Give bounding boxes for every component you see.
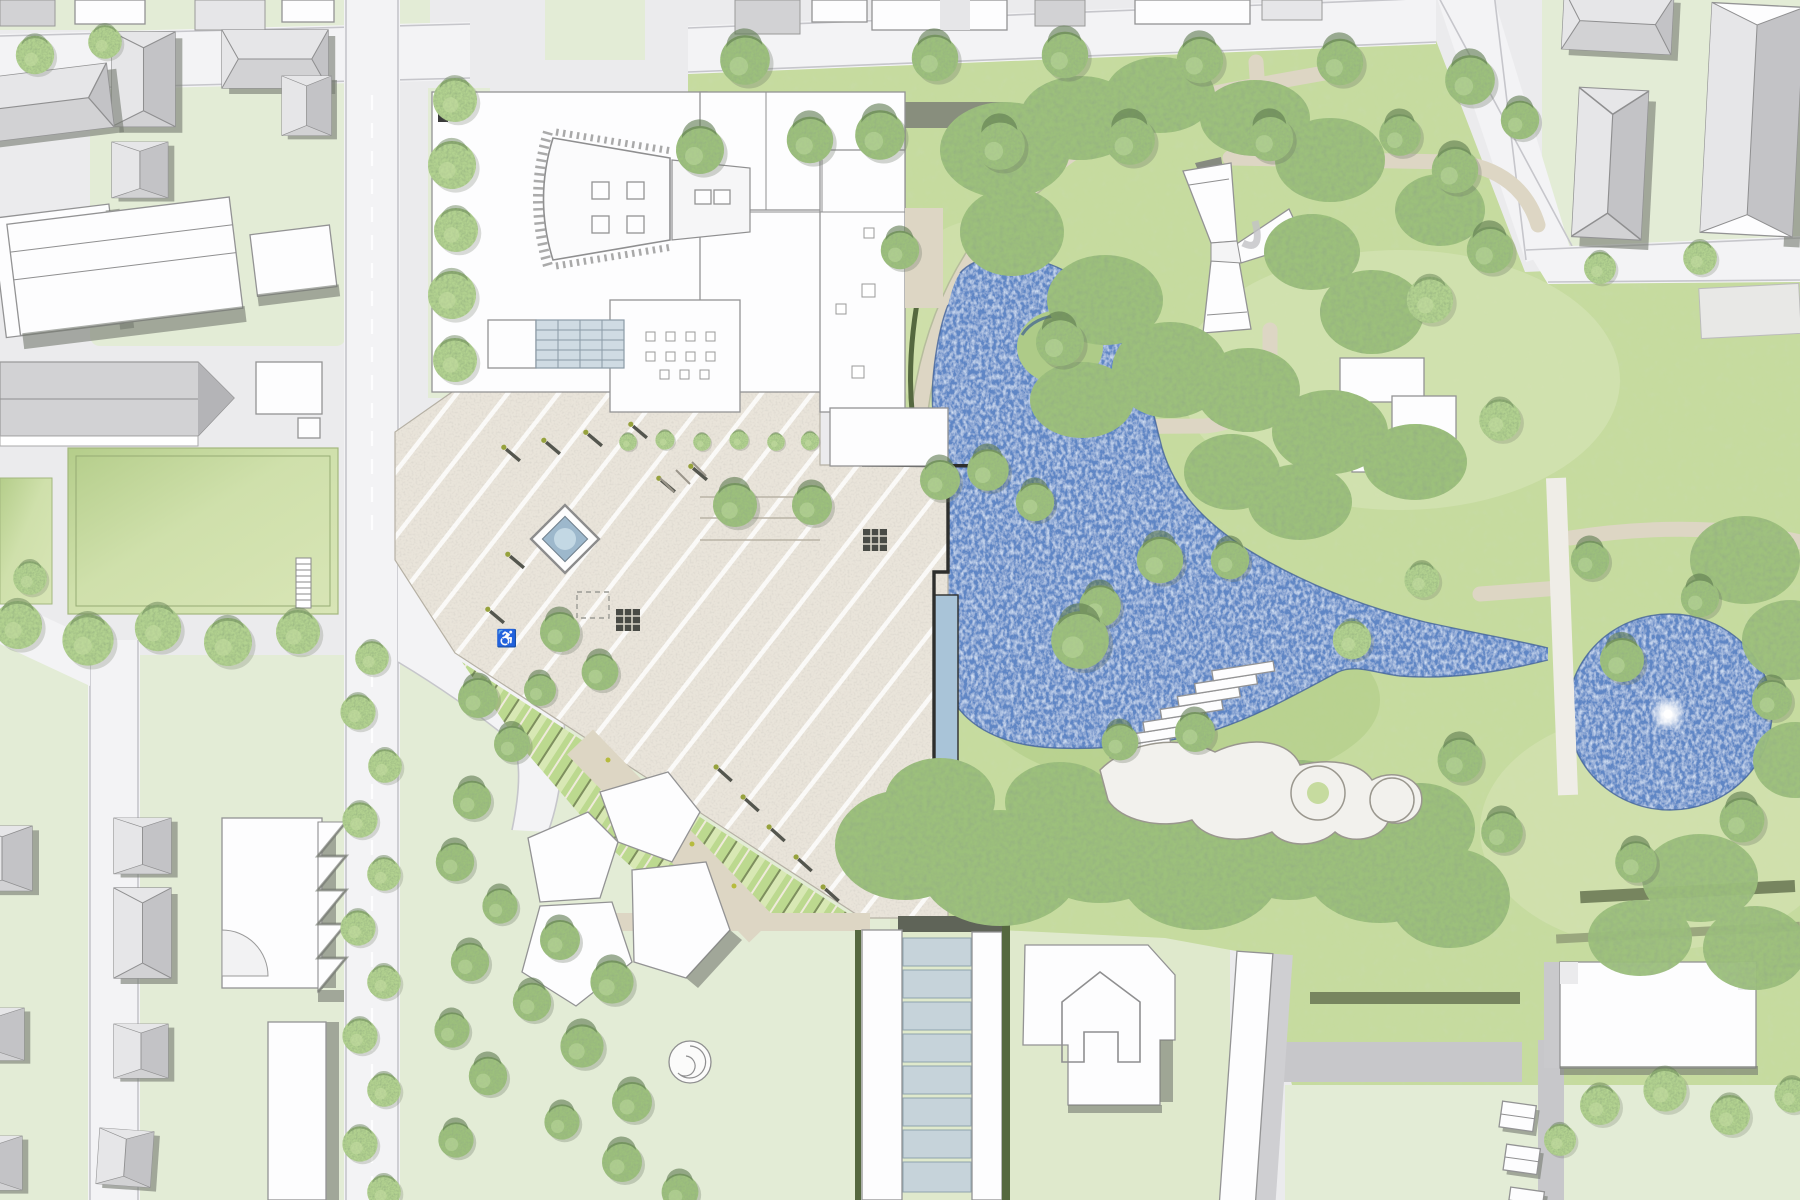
round-pond — [1568, 614, 1772, 810]
site-plan: ♿ — [0, 0, 1800, 1200]
glass-covered-ramp — [858, 916, 1006, 1200]
lawn-ladder — [296, 558, 311, 608]
accessible-parking-icon: ♿ — [496, 628, 517, 648]
gray-road-se — [1262, 1042, 1522, 1082]
ne-tall-slab — [1700, 3, 1800, 248]
natatorium-head — [830, 408, 948, 466]
plaza-grate — [616, 609, 640, 631]
plaza-grate — [863, 529, 887, 551]
pond-bridge-path — [1556, 478, 1568, 795]
slab-sw — [268, 1022, 339, 1200]
lap-pool — [934, 595, 958, 767]
skylight-grid — [488, 320, 624, 368]
site-plan-canvas: ♿ — [0, 0, 1800, 1200]
spiral-stair — [669, 1041, 711, 1083]
